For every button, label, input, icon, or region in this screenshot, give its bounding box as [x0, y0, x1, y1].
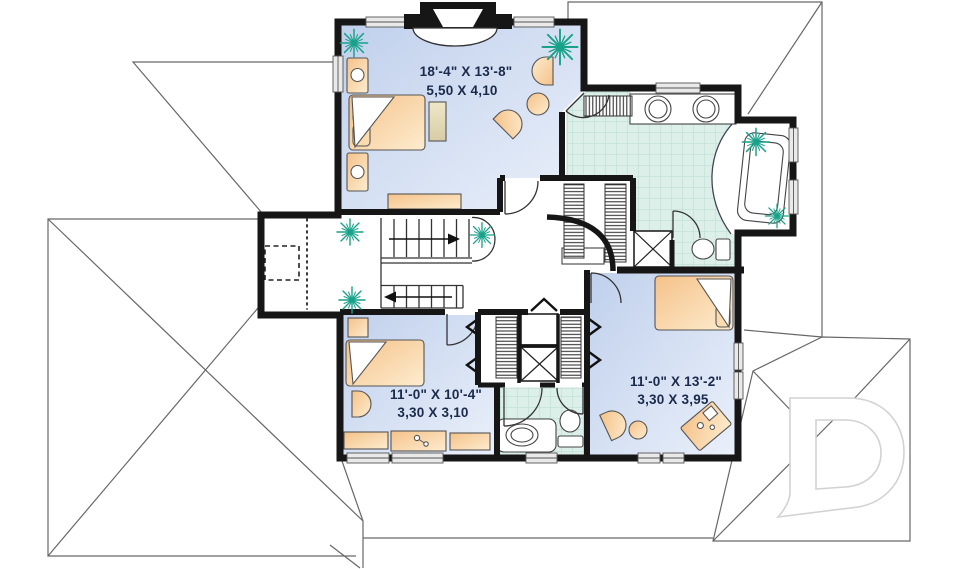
roof-upper-left	[133, 62, 338, 213]
window	[734, 372, 743, 399]
window	[789, 128, 798, 162]
plant-icon	[337, 219, 363, 245]
toilet-tank	[716, 239, 730, 260]
lamp	[351, 69, 364, 82]
side-table	[629, 421, 647, 439]
bedroom-3-dim-imperial: 11'-0" X 13'-2"	[630, 374, 722, 389]
floor-plan-drawing: 18'-4" X 13'-8" 5,50 X 4,10 11'-0" X 10'…	[0, 0, 960, 569]
plant-icon	[470, 223, 495, 248]
toilet-bowl	[692, 239, 714, 259]
plant-icon	[339, 287, 365, 313]
dresser	[344, 432, 388, 449]
sink-basin	[511, 428, 533, 442]
sink-basin	[697, 100, 715, 118]
closet-rod-bedroom2	[496, 317, 517, 378]
side-table	[527, 93, 549, 115]
hall-closet-box	[521, 314, 558, 345]
chimney-wing	[404, 14, 420, 29]
window	[734, 343, 743, 370]
plant-icon	[765, 204, 788, 227]
roof-eaves-bottom	[330, 461, 713, 568]
plant-icon	[542, 29, 577, 64]
plant-icon	[340, 29, 367, 56]
window	[526, 453, 557, 463]
floor-plan-page: 18'-4" X 13'-8" 5,50 X 4,10 11'-0" X 10'…	[0, 0, 960, 569]
window	[663, 453, 684, 463]
nightstand	[348, 318, 368, 337]
bedroom-2-dim-imperial: 11'-0" X 10'-4"	[390, 387, 482, 402]
plant-icon	[742, 128, 769, 155]
window	[392, 453, 443, 463]
armoire	[429, 102, 446, 141]
sink-basin	[649, 100, 667, 118]
lamp	[351, 166, 364, 179]
dresser	[450, 433, 490, 450]
master-bedroom-dim-imperial: 18'-4" X 13'-8"	[420, 64, 513, 79]
chimney-wing	[496, 14, 512, 29]
window	[514, 17, 554, 27]
closet-rod-bedroom3	[561, 317, 581, 378]
window	[656, 83, 700, 93]
bedroom-2-dim-metric: 3,30 X 3,10	[397, 405, 468, 420]
window	[347, 453, 389, 463]
toilet-tank	[558, 436, 583, 447]
watermark-d	[778, 398, 904, 517]
window	[789, 180, 798, 214]
bedroom-3-dim-metric: 3,30 X 3,95	[637, 392, 709, 407]
window	[333, 56, 343, 92]
window	[638, 453, 660, 463]
master-bedroom-dim-metric: 5,50 X 4,10	[426, 83, 497, 98]
dresser	[391, 431, 446, 451]
window	[366, 17, 408, 27]
low-dresser	[388, 194, 461, 209]
